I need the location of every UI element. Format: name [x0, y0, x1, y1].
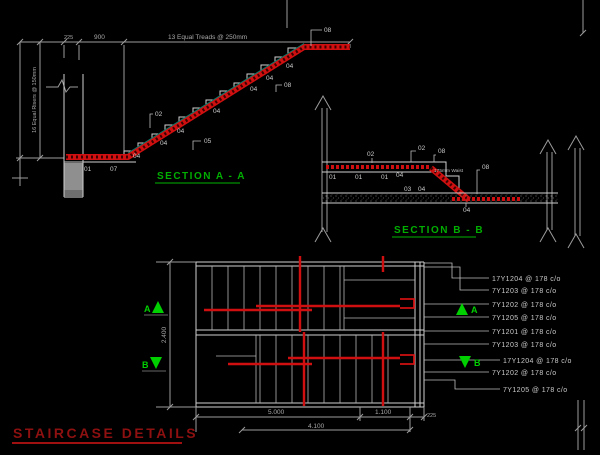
- rebar-callout: 17Y1204 @ 178 c/o: [492, 276, 561, 283]
- bar-label: 02: [418, 145, 426, 152]
- staircase-details-drawing: 225 900 13 Equal Treads @ 250mm 16 Equal…: [0, 0, 600, 455]
- stair-outline: [124, 48, 350, 160]
- bar-label: 04: [266, 75, 274, 82]
- bar-label: 01: [355, 174, 363, 181]
- section-a-title: SECTION A - A: [157, 171, 246, 182]
- section-a-view: 225 900 13 Equal Treads @ 250mm 16 Equal…: [12, 0, 586, 198]
- plan-dim-height: 2.400: [161, 326, 168, 343]
- waist-note: 175mm Waist: [434, 168, 464, 174]
- bar-label: 08: [324, 27, 332, 34]
- dim-900: 900: [94, 34, 105, 41]
- rebar-callout: 7Y1202 @ 178 c/o: [492, 370, 557, 377]
- cad-drawing-canvas: 225 900 13 Equal Treads @ 250mm 16 Equal…: [0, 0, 600, 455]
- bar-label: 02: [367, 151, 375, 158]
- rebar-callout: 7Y1203 @ 178 c/o: [492, 342, 557, 349]
- rebar-callout: 7Y1205 @ 178 c/o: [503, 387, 568, 394]
- plan-dim-225: 225: [427, 413, 436, 419]
- rebar-callout: 7Y1205 @ 178 c/o: [492, 315, 557, 322]
- section-markers: A B A B: [142, 301, 487, 371]
- rebar-callout: 7Y1203 @ 178 c/o: [492, 288, 557, 295]
- bar-label: 07: [110, 166, 118, 173]
- plan-treads-lower-flight: [216, 335, 388, 403]
- bar-label: 04: [160, 140, 168, 147]
- upper-landing-slab: [322, 162, 433, 172]
- plan-dim-5000: 5.000: [268, 409, 285, 416]
- marker-b-right-triangle: [459, 356, 471, 368]
- section-b-view: 02 02 08 01 01 01 04 03 04 08 04 175mm W…: [315, 96, 584, 248]
- bar-label: 02: [155, 111, 163, 118]
- bar-label: 01: [381, 174, 389, 181]
- bar-label: 04: [133, 153, 141, 160]
- bar-label: 08: [284, 82, 292, 89]
- plan-dim-4100: 4.100: [308, 423, 325, 430]
- bar-label: 08: [482, 164, 490, 171]
- bar-label: 04: [286, 63, 294, 70]
- plan-outline: [196, 262, 424, 407]
- bar-label: 04: [213, 108, 221, 115]
- section-b-title: SECTION B - B: [394, 225, 484, 236]
- wall-and-slab: [64, 74, 136, 198]
- plan-callout-leaders: [424, 263, 500, 389]
- bar-label: 03: [404, 186, 412, 193]
- marker-b-left-label: B: [142, 360, 149, 370]
- plan-callouts: 17Y1204 @ 178 c/o 7Y1203 @ 178 c/o 7Y120…: [492, 276, 572, 394]
- marker-a-right-triangle: [456, 303, 468, 315]
- bar-label: 05: [204, 138, 212, 145]
- rebar-callout: 7Y1201 @ 178 c/o: [492, 329, 557, 336]
- marker-a-left-triangle: [152, 301, 164, 313]
- rebar-callout: 7Y1202 @ 178 c/o: [492, 302, 557, 309]
- plan-view: 2.400 17Y1204 @ 178 c/o 7Y1203 @ 178 c/o…: [142, 256, 587, 450]
- plan-rebar: [204, 256, 414, 406]
- marker-b-left-triangle: [150, 357, 162, 369]
- plan-treads-upper-flight: [212, 266, 415, 330]
- bar-label: 01: [329, 174, 337, 181]
- marker-a-left-label: A: [144, 304, 151, 314]
- bar-label: 04: [396, 172, 404, 179]
- rebar-callout: 17Y1204 @ 178 c/o: [503, 358, 572, 365]
- marker-a-right-label: A: [471, 305, 478, 315]
- dim-225-top: 225: [64, 35, 73, 41]
- dim-risers: 16 Equal Risers @ 150mm: [32, 67, 38, 133]
- marker-b-right-label: B: [474, 358, 481, 368]
- dim-treads: 13 Equal Treads @ 250mm: [168, 34, 247, 41]
- bar-label: 04: [177, 128, 185, 135]
- bar-label: 04: [250, 86, 258, 93]
- bar-label: 04: [463, 207, 471, 214]
- lower-slab: [322, 193, 558, 203]
- bar-label: 04: [418, 186, 426, 193]
- bar-label: 01: [84, 166, 92, 173]
- drawing-title: STAIRCASE DETAILS: [13, 425, 198, 441]
- bar-label: 08: [438, 148, 446, 155]
- section-b-bar-labels: 02 02 08 01 01 01 04 03 04 08 04 175mm W…: [329, 145, 490, 214]
- plan-dim-1100: 1.100: [375, 409, 392, 416]
